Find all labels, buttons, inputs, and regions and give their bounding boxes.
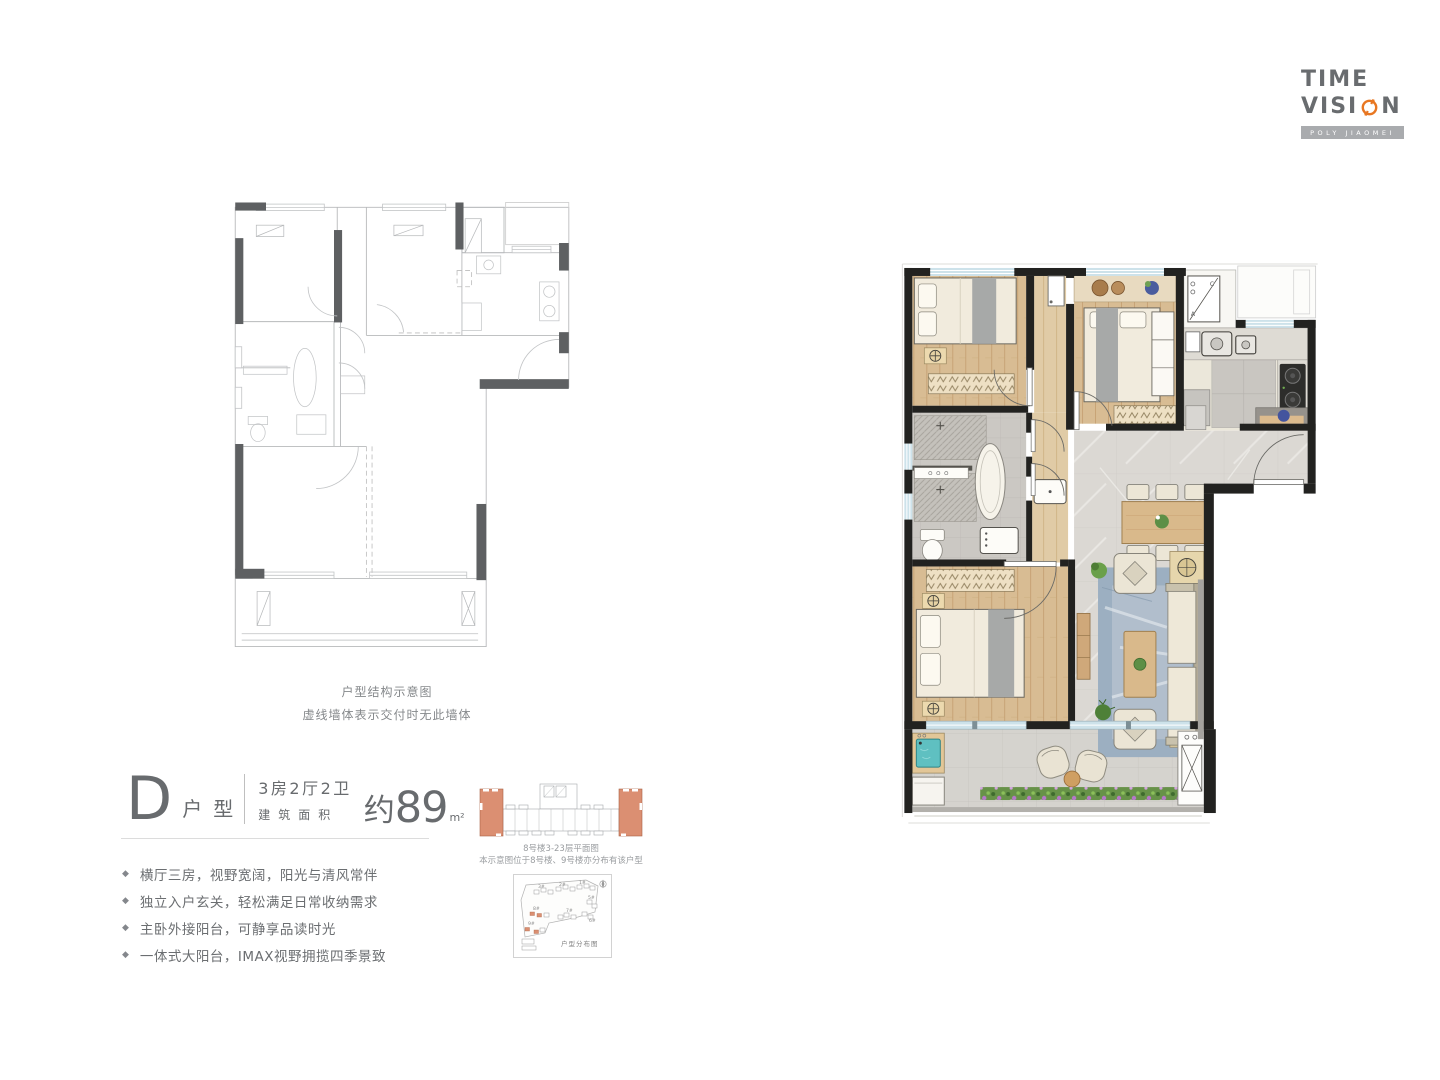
bathtub [975,444,1005,520]
structural-plan-caption: 户型结构示意图 虚线墙体表示交付时无此墙体 [232,681,542,727]
shower-area [914,474,976,522]
svg-text:7#: 7# [566,908,573,914]
logo-text-n: N [1381,93,1401,120]
unit-area: 约 89 m² [364,790,465,826]
diamond-bullet-icon: ◆ [122,950,129,960]
svg-text:2#: 2# [559,882,566,888]
compass-o-icon [1359,97,1380,118]
feature-list: ◆横厅三房，视野宽阔，阳光与清风常伴 ◆独立入户玄关，轻松满足日常收纳需求 ◆主… [122,860,386,968]
tv-console [1077,613,1090,679]
shower-area [914,416,986,460]
plant [1278,410,1290,422]
unit-specs: 3房2厅2卫 建筑面积 [258,775,352,823]
building-caption-line2: 本示意图位于8号楼、9号楼亦分布有该户型 [478,855,644,867]
flower-bed [980,787,1192,800]
diamond-bullet-icon: ◆ [122,896,129,906]
washing-machine [912,777,944,805]
unit-area-approx: 约 [364,796,395,826]
utility-balcony: C A [1188,276,1220,322]
feature-text: 独立入户玄关，轻松满足日常收纳需求 [140,891,378,911]
logo-line-2: VISIN [1301,93,1402,120]
master-bedroom-furniture [916,569,1024,716]
compass-icon [600,880,606,889]
ac-symbol-boxes [256,219,481,626]
feature-item: ◆一体式大阳台，IMAX视野拥揽四季景致 [122,941,386,968]
feature-text: 一体式大阳台，IMAX视野拥揽四季景致 [140,945,386,965]
divider-rule [121,838,429,839]
unit-area-value: 89 [395,790,448,826]
structural-fixtures [243,256,559,442]
rendered-floor-plan: C A [900,258,1320,832]
structural-columns [235,202,569,580]
plant [1095,704,1111,720]
feature-text: 横厅三房，视野宽阔，阳光与清风常伴 [140,864,378,884]
balcony-railing [912,807,1203,812]
round-table [1064,771,1080,787]
door-leaf [1186,332,1200,352]
vanity-counter [914,468,968,479]
unit-type-label: 户型 [182,793,244,822]
brand-logo: TIME VISIN [1301,66,1402,120]
unit-area-unit: m² [449,811,464,824]
svg-text:1#: 1# [579,880,586,886]
site-plan-label: 户型分布图 [561,939,599,948]
wardrobe [926,569,1014,591]
unit-rooms: 3房2厅2卫 [258,775,352,799]
feature-item: ◆主卧外接阳台，可静享品读时光 [122,914,386,941]
diamond-bullet-icon: ◆ [122,869,129,879]
unit-area-label: 建筑面积 [258,806,352,823]
building-floor-plan [478,783,644,839]
structural-walls [235,202,569,646]
feature-item: ◆独立入户玄关，轻松满足日常收纳需求 [122,887,386,914]
site-plan: 1# 2# 3# 5# 6# 7# 8# 9# 户型分布图 [514,875,611,957]
ac-letter-c: C [1210,281,1214,288]
bookshelf [1152,312,1174,396]
diamond-bullet-icon: ◆ [122,923,129,933]
building-plan-caption: 8号楼3-23层平面图 本示意图位于8号楼、9号楼亦分布有该户型 [478,843,644,867]
site-plan-box: 1# 2# 3# 5# 6# 7# 8# 9# 户型分布图 [513,874,612,958]
svg-text:6#: 6# [589,918,596,924]
logo-text-visi: VISI [1301,93,1358,120]
unit-letter: D [126,772,172,826]
bedroom2-furniture [914,278,1016,394]
dashed-removable-walls [366,271,471,577]
logo-tagline-bar: POLY JIAOMEI [1301,126,1404,139]
open-terrace [1238,266,1316,318]
caption-title: 户型结构示意图 [232,681,542,704]
console-shelf [1074,274,1176,302]
unit-info: D 户型 3房2厅2卫 建筑面积 约 89 m² [126,772,465,826]
logo-text-time: TIME [1301,66,1369,93]
basket [1092,280,1108,296]
svg-text:3#: 3# [538,884,545,890]
feature-text: 主卧外接阳台，可静享品读时光 [140,918,336,938]
unit-divider [244,774,245,824]
toilet [920,530,944,541]
svg-text:9#: 9# [528,921,535,927]
caption-note: 虚线墙体表示交付时无此墙体 [232,704,542,727]
basket [1111,281,1124,294]
svg-text:8#: 8# [533,906,540,912]
structural-windows [235,204,551,578]
building-outline [503,784,619,835]
logo-tagline-text: POLY JIAOMEI [1310,129,1395,137]
wardrobe [1114,406,1176,424]
feature-item: ◆横厅三房，视野宽阔，阳光与清风常伴 [122,860,386,887]
logo-line-1: TIME [1301,66,1402,93]
structural-floor-plan [232,196,572,662]
svg-text:5#: 5# [588,895,595,901]
plant [1134,658,1146,670]
building-caption-line1: 8号楼3-23层平面图 [478,843,644,855]
sliding-door-panel [1186,406,1206,430]
